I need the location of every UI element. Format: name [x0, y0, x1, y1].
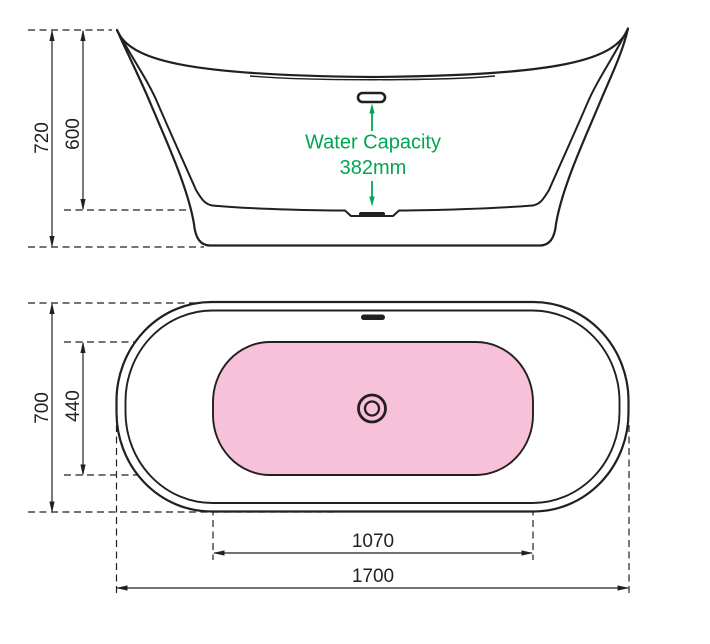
- dimension-label-440: 440: [63, 390, 84, 422]
- dimension-label-600: 600: [63, 118, 84, 150]
- dimension-side-rim-to-floor: 600: [63, 30, 86, 211]
- arrowhead-down-icon: [49, 502, 54, 514]
- dimension-plan-basin-width: 440: [63, 342, 86, 477]
- arrowhead-down-icon: [80, 465, 85, 477]
- arrowhead-up-icon: [49, 30, 54, 42]
- bath-side-overflow: [358, 93, 385, 102]
- dimension-label-1070: 1070: [352, 531, 394, 552]
- drawing-canvas: Water Capacity 382mm 720 600: [0, 0, 710, 644]
- dimension-label-1700: 1700: [352, 566, 394, 587]
- plan-view: 700 440 1070 1700: [28, 302, 629, 597]
- arrowhead-right-icon: [618, 585, 630, 590]
- dimension-plan-overall-width: 700: [32, 303, 55, 514]
- dimension-side-overall-height: 720: [32, 30, 55, 248]
- arrowhead-left-icon: [213, 550, 225, 555]
- bath-side-waste: [359, 212, 385, 216]
- bathtub-technical-drawing: Water Capacity 382mm 720 600: [0, 0, 710, 644]
- bath-plan-overflow: [361, 315, 385, 321]
- dimension-label-700: 700: [32, 392, 53, 424]
- arrowhead-up-icon: [80, 30, 85, 42]
- water-capacity-value: 382mm: [340, 157, 407, 179]
- side-view: Water Capacity 382mm 720 600: [28, 29, 628, 248]
- bath-plan-basin: [213, 342, 533, 475]
- dimension-label-720: 720: [32, 122, 53, 154]
- arrowhead-up-icon: [80, 342, 85, 354]
- dimension-plan-overall-length: 1700: [116, 566, 629, 591]
- arrowhead-up-icon: [49, 303, 54, 315]
- arrowhead-left-icon: [116, 585, 128, 590]
- dimension-plan-basin-length: 1070: [213, 531, 533, 556]
- arrowhead-right-icon: [522, 550, 534, 555]
- arrowhead-down-icon: [49, 236, 54, 248]
- water-capacity-label: Water Capacity: [305, 132, 441, 154]
- arrowhead-down-icon: [80, 199, 85, 211]
